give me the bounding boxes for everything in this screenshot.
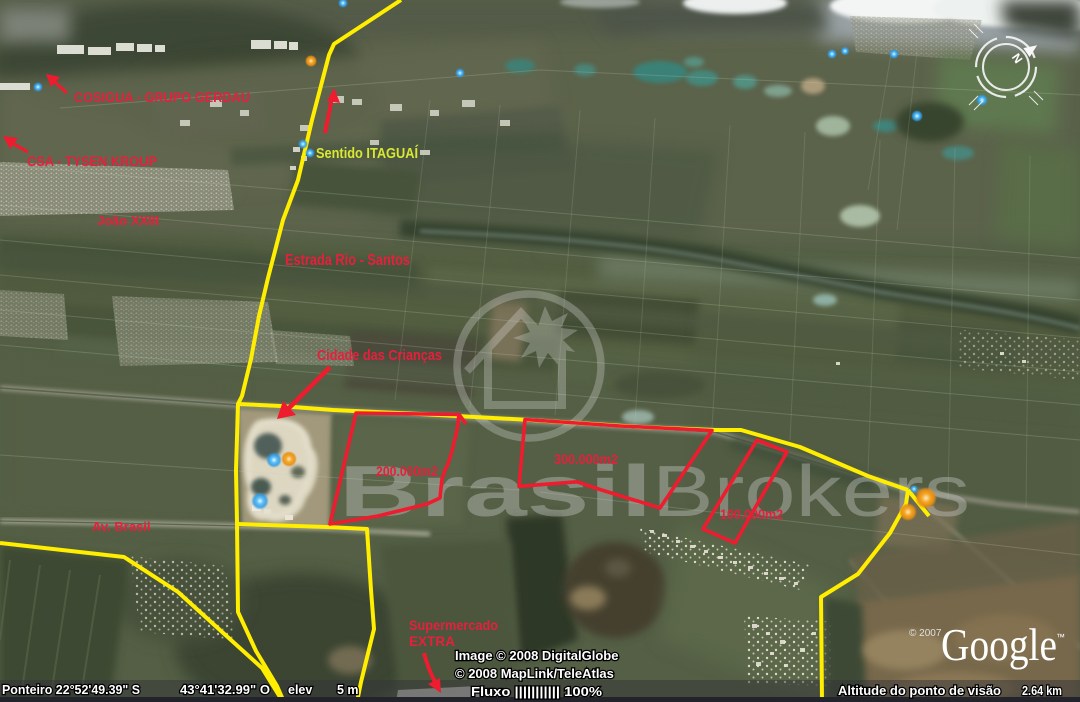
svg-text:300.000m2: 300.000m2 <box>554 452 618 467</box>
svg-text:Ponteiro 22°52'49.39" S: Ponteiro 22°52'49.39" S <box>2 683 140 697</box>
svg-text:João XXIII: João XXIII <box>97 213 159 228</box>
svg-text:5 m: 5 m <box>337 683 359 697</box>
svg-text:43°41'32.99" O: 43°41'32.99" O <box>180 683 270 697</box>
svg-text:Av. Brasil: Av. Brasil <box>92 519 151 534</box>
svg-text:Sentido ITAGUAÍ: Sentido ITAGUAÍ <box>316 145 419 162</box>
svg-text:EXTRA: EXTRA <box>409 633 455 649</box>
svg-text:Fluxo ||||||||||| 100%: Fluxo ||||||||||| 100% <box>471 685 602 699</box>
svg-text:100.000m2: 100.000m2 <box>720 507 783 522</box>
svg-text:2.64 km: 2.64 km <box>1022 684 1062 698</box>
svg-text:elev: elev <box>288 683 312 697</box>
svg-text:COSIGUA - GRUPO GERDAU: COSIGUA - GRUPO GERDAU <box>74 89 250 105</box>
svg-text:Altitude do ponto de visão: Altitude do ponto de visão <box>838 684 1001 698</box>
svg-text:200.000m2: 200.000m2 <box>376 464 438 479</box>
svg-text:Cidade das Crianças: Cidade das Crianças <box>317 348 442 364</box>
svg-text:Google: Google <box>941 619 1057 670</box>
svg-text:Image © 2008 DigitalGlobe: Image © 2008 DigitalGlobe <box>455 648 618 663</box>
svg-text:Supermercado: Supermercado <box>409 617 498 633</box>
svg-text:CSA - TYSEN KROUP: CSA - TYSEN KROUP <box>27 153 157 169</box>
svg-text:Estrada Rio - Santos: Estrada Rio - Santos <box>285 252 410 269</box>
svg-text:© 2008 MapLink/TeleAtlas: © 2008 MapLink/TeleAtlas <box>455 666 614 681</box>
svg-text:© 2007: © 2007 <box>909 628 942 639</box>
svg-text:™: ™ <box>1056 632 1065 642</box>
